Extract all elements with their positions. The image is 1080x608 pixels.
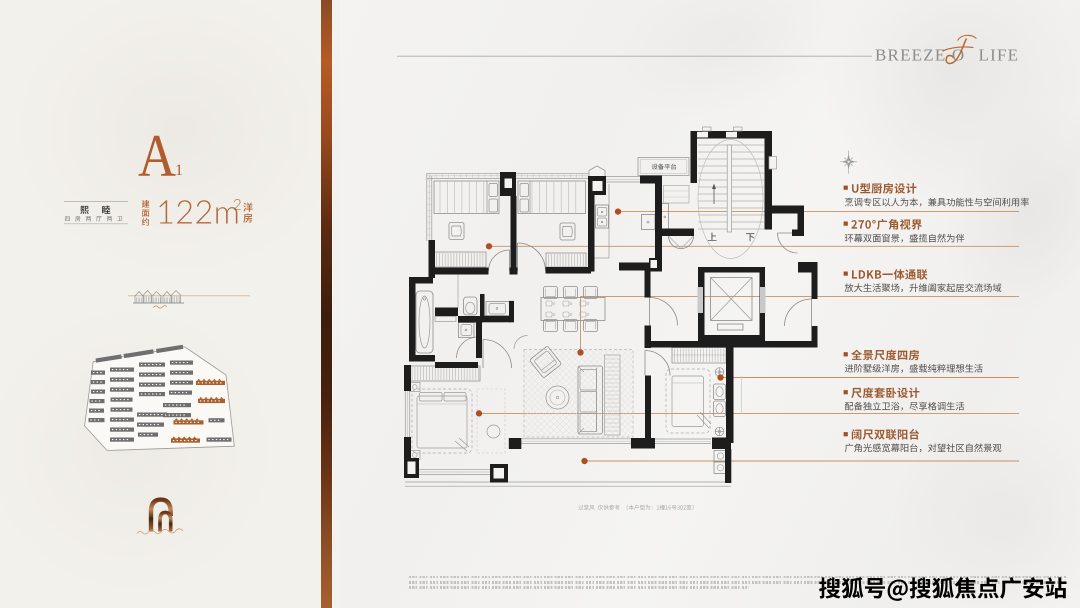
svg-text:A: A <box>138 123 176 189</box>
svg-text:1: 1 <box>175 162 183 179</box>
svg-text:LIFE: LIFE <box>979 46 1020 65</box>
